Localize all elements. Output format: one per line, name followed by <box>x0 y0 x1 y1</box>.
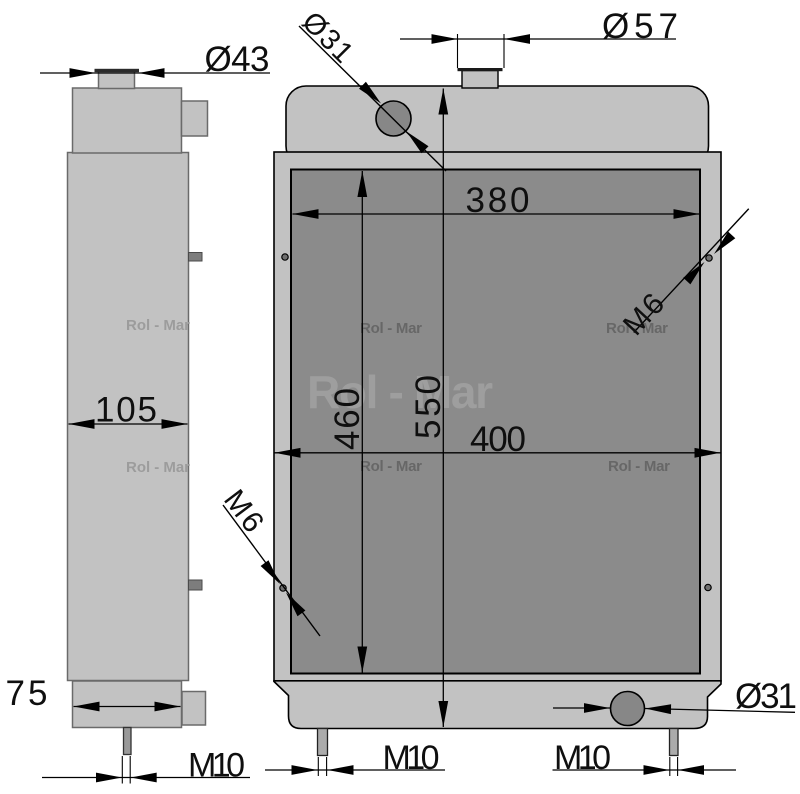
svg-text:Ø57: Ø57 <box>602 7 678 46</box>
svg-text:Rol - Mar: Rol - Mar <box>360 458 422 475</box>
svg-text:Rol - Mar: Rol - Mar <box>126 459 190 476</box>
svg-text:Ø43: Ø43 <box>205 40 270 79</box>
svg-text:Rol - Mar: Rol - Mar <box>360 320 422 337</box>
svg-text:460: 460 <box>328 388 367 450</box>
svg-text:M6: M6 <box>217 484 270 539</box>
svg-text:400: 400 <box>470 420 526 459</box>
svg-text:M10: M10 <box>383 739 440 777</box>
svg-text:Rol - Mar: Rol - Mar <box>608 458 670 475</box>
svg-text:Ø31: Ø31 <box>296 6 360 70</box>
svg-text:M10: M10 <box>554 739 611 777</box>
svg-text:75: 75 <box>6 674 48 713</box>
svg-text:Rol - Mar: Rol - Mar <box>126 317 190 334</box>
svg-text:380: 380 <box>466 181 530 220</box>
svg-text:105: 105 <box>95 391 157 430</box>
svg-text:M10: M10 <box>188 747 245 785</box>
svg-text:550: 550 <box>409 375 448 439</box>
svg-text:Ø31: Ø31 <box>735 677 797 716</box>
